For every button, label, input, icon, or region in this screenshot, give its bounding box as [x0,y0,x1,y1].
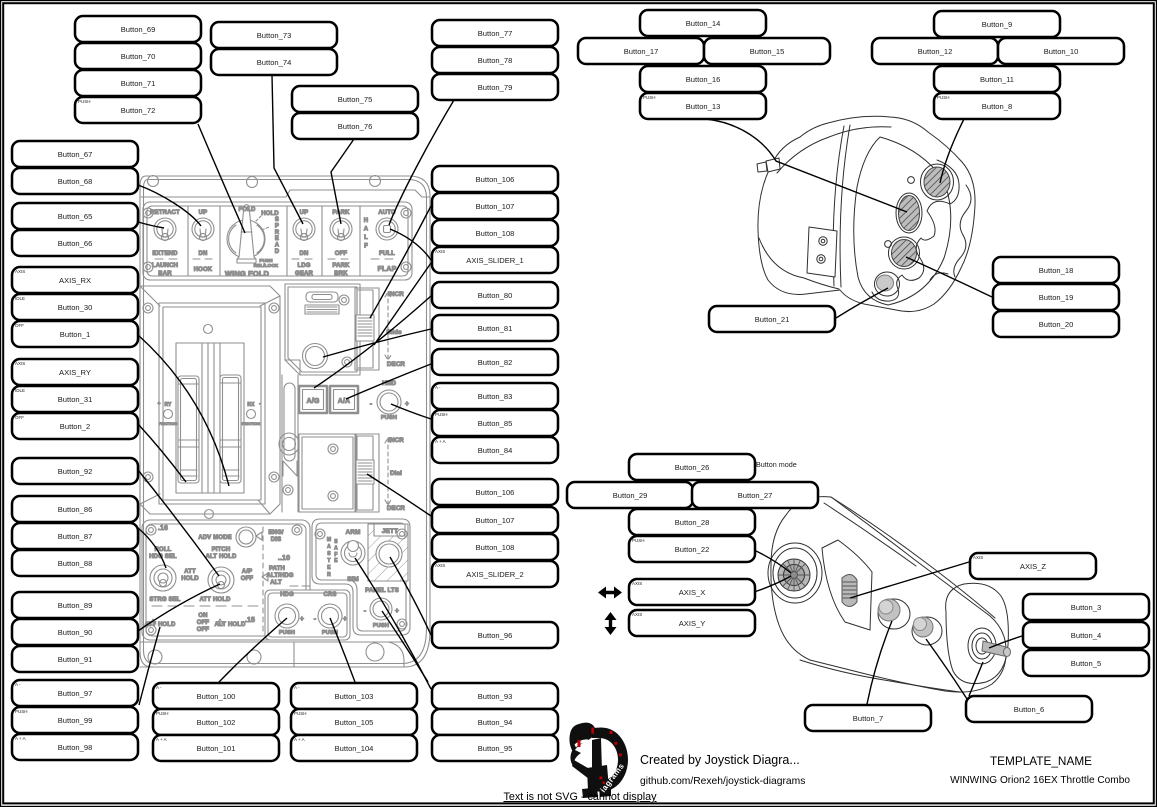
svg-text:FULL: FULL [379,251,395,257]
svg-text:Button_106: Button_106 [476,488,515,497]
svg-text:M: M [327,537,331,543]
svg-text:PUSH: PUSH [632,538,645,543]
svg-text:DECR: DECR [387,361,406,368]
svg-text:RY: RY [164,402,172,408]
svg-text:A: A [334,545,338,551]
svg-text:F: F [334,552,337,558]
svg-text:+: + [300,616,304,623]
svg-text:INCR: INCR [388,291,404,298]
svg-text:Button_108: Button_108 [476,543,515,552]
svg-text:PARK: PARK [332,210,350,216]
svg-text:Button_5: Button_5 [1071,659,1101,668]
svg-text:Button_87: Button_87 [58,532,93,541]
svg-text:Button_65: Button_65 [58,212,93,221]
svg-text:Button_83: Button_83 [478,392,513,401]
svg-text:Button_67: Button_67 [58,150,93,159]
svg-text:A + A: A + A [435,439,446,444]
svg-text:WINWING Orion2 16EX Throttle C: WINWING Orion2 16EX Throttle Combo [950,775,1130,786]
svg-text:HOLD: HOLD [181,576,199,582]
svg-text:HOOK: HOOK [194,267,213,273]
svg-text:S: S [327,551,331,557]
svg-text:Button_12: Button_12 [918,47,953,56]
svg-text:D: D [275,249,280,255]
svg-text:ATT: ATT [184,569,196,575]
svg-text:PUSH: PUSH [78,99,91,104]
svg-text:+: + [343,616,347,623]
svg-text:Button_21: Button_21 [755,315,790,324]
svg-text:Button_96: Button_96 [478,631,513,640]
svg-text:A -: A - [294,685,300,690]
svg-text:FOLD: FOLD [239,207,256,213]
svg-text:H: H [364,218,368,224]
svg-text:Button_29: Button_29 [613,491,648,500]
svg-text:CRS: CRS [323,592,336,598]
svg-text:UP: UP [300,210,309,216]
svg-text:UP: UP [199,210,208,216]
svg-text:PANEL LTS: PANEL LTS [365,588,399,594]
svg-text:R: R [275,230,280,236]
svg-text:Text is not SVG - cannot displ: Text is not SVG - cannot display [503,791,657,803]
svg-text:Button_107: Button_107 [476,202,515,211]
svg-text:Button_7: Button_7 [853,714,883,723]
svg-text:Button_28: Button_28 [675,518,710,527]
svg-text:T: T [327,558,330,564]
svg-text:OFF: OFF [197,620,210,626]
svg-text:AXIS_X: AXIS_X [679,588,706,597]
svg-text:A + A: A + A [294,737,305,742]
svg-text:Button_100: Button_100 [197,692,236,701]
svg-text:AXIS_Y: AXIS_Y [679,619,706,628]
svg-text:Button_99: Button_99 [58,716,93,725]
svg-text:PUSH: PUSH [937,95,950,100]
svg-text:A + A: A + A [15,736,26,741]
svg-text:A/G: A/G [307,398,320,405]
svg-text:Button_88: Button_88 [58,559,93,568]
svg-text:AXIS_RX: AXIS_RX [59,276,91,285]
svg-text:P: P [275,223,279,229]
svg-text:AXIS_SLIDER_2: AXIS_SLIDER_2 [466,570,523,579]
svg-text:REL/LOCK: REL/LOCK [254,263,279,268]
svg-text:Button_102: Button_102 [197,718,236,727]
svg-text:PUSH: PUSH [435,412,448,417]
svg-text:ALT/HDG: ALT/HDG [266,573,293,579]
svg-text:Button_19: Button_19 [1039,293,1074,302]
svg-text:+: + [395,608,399,615]
svg-text:Button_91: Button_91 [58,655,93,664]
svg-text:ALT HOLD: ALT HOLD [205,554,237,560]
svg-text:Button_74: Button_74 [257,58,292,67]
svg-text:Button_66: Button_66 [58,239,93,248]
svg-text:Button_101: Button_101 [197,744,236,753]
svg-text:Button_107: Button_107 [476,516,515,525]
svg-text:Button_22: Button_22 [675,545,710,554]
svg-text:FLAP: FLAP [378,266,397,273]
svg-text:Button_68: Button_68 [58,177,93,186]
svg-text:DECR: DECR [387,505,406,512]
svg-text:ARM: ARM [345,529,360,536]
svg-text:AXIS: AXIS [15,361,25,366]
svg-text:Button_6: Button_6 [1014,705,1044,714]
svg-text:E: E [334,558,338,564]
svg-text:AXIS: AXIS [973,555,983,560]
svg-text:Button_3: Button_3 [1071,603,1101,612]
svg-text:Button_30: Button_30 [58,303,93,312]
svg-text:OFF: OFF [241,576,254,582]
svg-text:DN: DN [300,251,309,257]
svg-text:..10: ..10 [278,555,290,562]
svg-text:Button_81: Button_81 [478,324,513,333]
svg-text:LDG: LDG [297,263,310,269]
svg-text:Button_4: Button_4 [1071,631,1101,640]
svg-text:BRK: BRK [334,271,348,277]
svg-text:Button_89: Button_89 [58,601,93,610]
svg-text:Button_103: Button_103 [335,692,374,701]
svg-text:FRICTION: FRICTION [159,422,177,426]
svg-text:Button_104: Button_104 [335,744,374,753]
svg-text:AXIS: AXIS [632,581,642,586]
svg-text:Button_2: Button_2 [60,422,90,431]
svg-text:Button_86: Button_86 [58,505,93,514]
svg-text:DN: DN [199,251,208,257]
svg-text:Button_10: Button_10 [1044,47,1079,56]
svg-text:.15: .15 [245,617,255,624]
svg-text:Button_71: Button_71 [121,79,156,88]
svg-text:ALT: ALT [270,580,282,586]
svg-text:Button_85: Button_85 [478,419,513,428]
svg-text:A -: A - [156,685,162,690]
svg-text:BAR: BAR [158,271,172,277]
svg-text:Button_90: Button_90 [58,628,93,637]
svg-text:FRICTION: FRICTION [242,422,260,426]
svg-text:HDG: HDG [280,592,294,598]
svg-text:Button_31: Button_31 [58,395,93,404]
svg-text:Button_105: Button_105 [335,718,374,727]
svg-text:Button_97: Button_97 [58,689,93,698]
svg-text:Created by Joystick Diagra...: Created by Joystick Diagra... [640,753,800,767]
svg-text:Button_82: Button_82 [478,358,513,367]
svg-text:STRG SEL: STRG SEL [149,597,180,603]
svg-text:Button_18: Button_18 [1039,266,1074,275]
svg-text:.16: .16 [158,525,168,532]
svg-text:IDLE: IDLE [15,296,25,301]
svg-text:OFF: OFF [335,251,348,257]
svg-text:E: E [327,565,331,571]
svg-text:PUSH: PUSH [15,709,28,714]
svg-text:Button_106: Button_106 [476,175,515,184]
svg-text:RETRACT: RETRACT [150,210,180,216]
svg-text:ENG/: ENG/ [268,530,283,536]
svg-text:RX: RX [247,402,255,408]
svg-text:AXIS: AXIS [15,269,25,274]
svg-text:LAUNCH: LAUNCH [152,263,178,269]
svg-text:A + A: A + A [156,737,167,742]
svg-text:ON: ON [198,613,207,619]
svg-text:Button_75: Button_75 [338,95,373,104]
svg-text:IDLE: IDLE [15,388,25,393]
svg-text:A/A: A/A [338,398,351,405]
svg-text:HMD: HMD [382,381,397,387]
svg-text:AXIS_SLIDER_1: AXIS_SLIDER_1 [466,256,523,265]
svg-text:A: A [364,227,369,233]
svg-text:Button_108: Button_108 [476,229,515,238]
svg-text:Button_78: Button_78 [478,56,513,65]
svg-text:AXIS: AXIS [632,612,642,617]
svg-text:Button_11: Button_11 [980,75,1014,84]
svg-text:L: L [364,235,368,241]
svg-text:PITCH: PITCH [212,547,231,553]
svg-text:Button_27: Button_27 [738,491,773,500]
svg-text:PUSH: PUSH [294,711,307,716]
svg-text:Button_26: Button_26 [675,463,710,472]
svg-text:Button_9: Button_9 [982,20,1012,29]
svg-text:Button_77: Button_77 [478,29,513,38]
svg-text:R: R [327,572,331,578]
svg-text:AXIS: AXIS [435,563,445,568]
svg-text:Button_73: Button_73 [257,31,292,40]
svg-text:github.com/Rexeh/joystick-diag: github.com/Rexeh/joystick-diagrams [640,776,805,787]
svg-text:PUSH: PUSH [279,630,295,636]
svg-text:Button_72: Button_72 [121,106,156,115]
svg-text:A: A [327,544,331,550]
svg-text:ALT HOLD: ALT HOLD [214,622,246,628]
svg-text:F: F [364,244,368,250]
svg-text:Button_95: Button_95 [478,744,513,753]
svg-text:A: A [275,243,280,249]
svg-text:A -: A - [435,385,441,390]
svg-text:WING FOLD: WING FOLD [225,269,270,278]
svg-text:Button_93: Button_93 [478,692,513,701]
svg-text:Button_13: Button_13 [686,102,721,111]
svg-text:OFF: OFF [15,415,24,420]
svg-text:Button_1: Button_1 [60,330,90,339]
svg-text:AXIS_RY: AXIS_RY [59,368,91,377]
svg-text:E: E [275,236,279,242]
svg-text:ATT HOLD: ATT HOLD [199,597,231,603]
svg-text:EXTEND: EXTEND [152,251,178,257]
svg-text:PUSH: PUSH [643,95,656,100]
svg-text:TEMPLATE_NAME: TEMPLATE_NAME [990,754,1092,768]
svg-text:Button_69: Button_69 [121,25,156,34]
svg-text:A -: A - [15,682,21,687]
svg-text:AXIS: AXIS [435,249,445,254]
svg-text:Button_92: Button_92 [58,467,93,476]
svg-text:Button_84: Button_84 [478,446,513,455]
svg-text:JETT: JETT [382,528,398,535]
svg-text:Button_79: Button_79 [478,83,513,92]
svg-text:INCR: INCR [388,437,404,444]
svg-text:Button_8: Button_8 [982,102,1012,111]
svg-text:+: + [405,401,409,408]
svg-text:PARK: PARK [332,263,350,269]
svg-text:Button_15: Button_15 [750,47,785,56]
svg-text:S: S [334,539,338,545]
svg-text:Button_16: Button_16 [686,75,721,84]
svg-text:PUSH: PUSH [373,623,389,629]
svg-text:DIS: DIS [271,537,281,543]
svg-text:A/P: A/P [242,569,252,575]
svg-text:+: + [157,401,160,407]
svg-text:Button_20: Button_20 [1039,320,1074,329]
svg-text:GEAR: GEAR [295,271,313,277]
svg-text:AXIS_Z: AXIS_Z [1020,562,1047,571]
svg-text:Dial: Dial [390,470,402,477]
svg-text:PATH: PATH [269,566,285,572]
svg-text:OFF: OFF [197,627,210,633]
svg-text:Button_94: Button_94 [478,718,513,727]
svg-text:Button_76: Button_76 [338,122,373,131]
svg-text:-: - [259,401,261,407]
svg-text:Button_70: Button_70 [121,52,156,61]
svg-text:PUSH: PUSH [156,711,169,716]
svg-text:Button_14: Button_14 [686,19,721,28]
svg-text:S: S [275,217,279,223]
svg-text:PUSH: PUSH [381,415,397,421]
svg-text:ADV MODE: ADV MODE [198,535,232,541]
svg-text:Button_98: Button_98 [58,743,93,752]
svg-text:Button mode: Button mode [756,460,797,469]
svg-text:OFF: OFF [15,323,24,328]
svg-text:Button_17: Button_17 [624,47,659,56]
svg-text:Button_80: Button_80 [478,291,513,300]
svg-text:SIM: SIM [347,576,359,583]
